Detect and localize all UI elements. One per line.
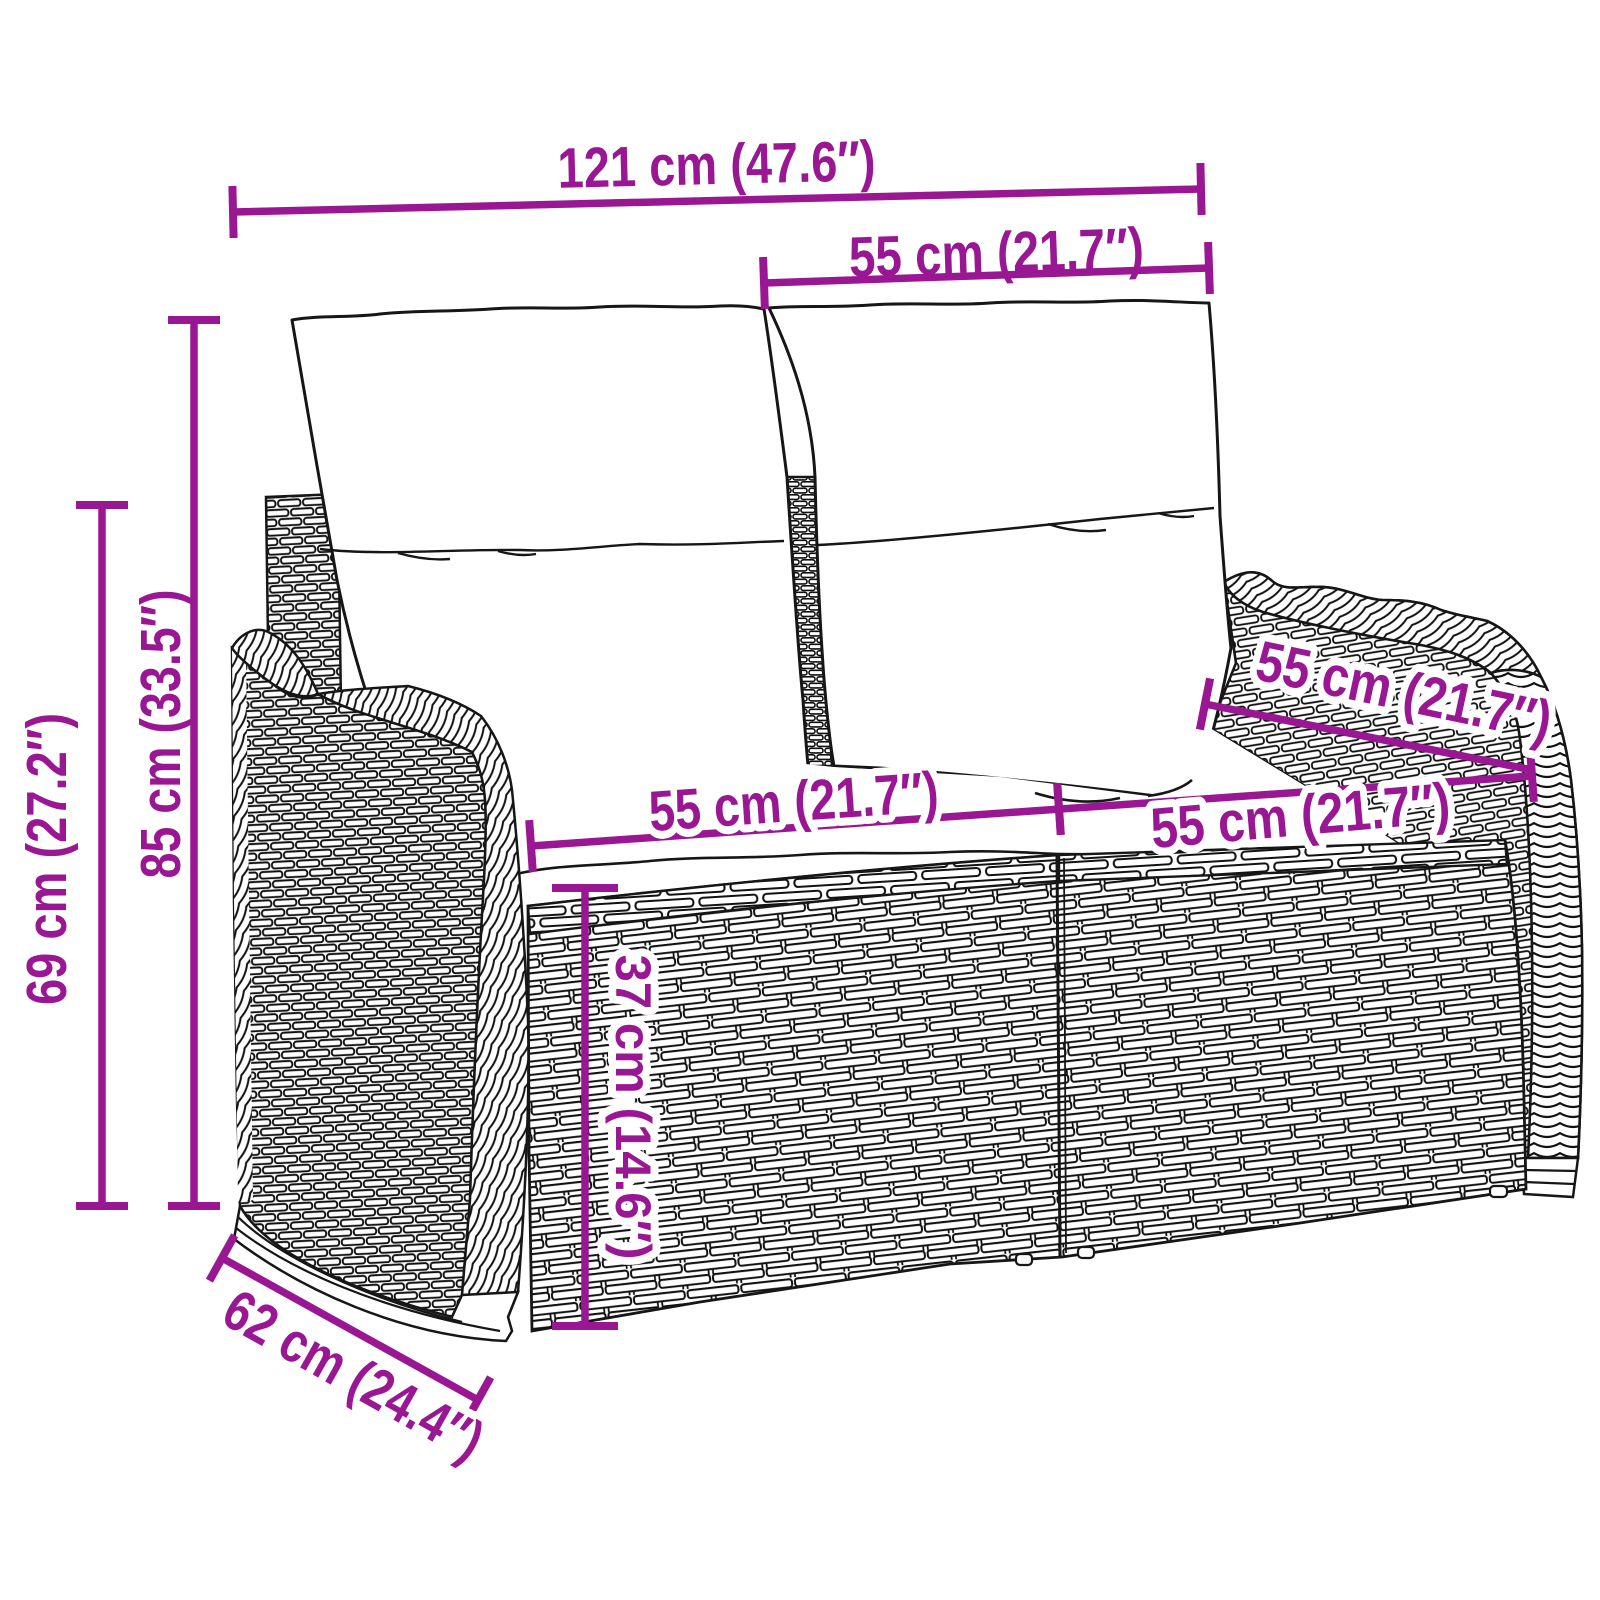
svg-text:69 cm (27.2″): 69 cm (27.2″)	[15, 713, 79, 1005]
svg-text:121 cm (47.6″): 121 cm (47.6″)	[557, 129, 876, 201]
svg-text:85 cm (33.5″): 85 cm (33.5″)	[129, 590, 193, 879]
svg-text:37 cm (14.6″): 37 cm (14.6″)	[605, 955, 661, 1260]
svg-text:55 cm (21.7″): 55 cm (21.7″)	[848, 216, 1145, 290]
